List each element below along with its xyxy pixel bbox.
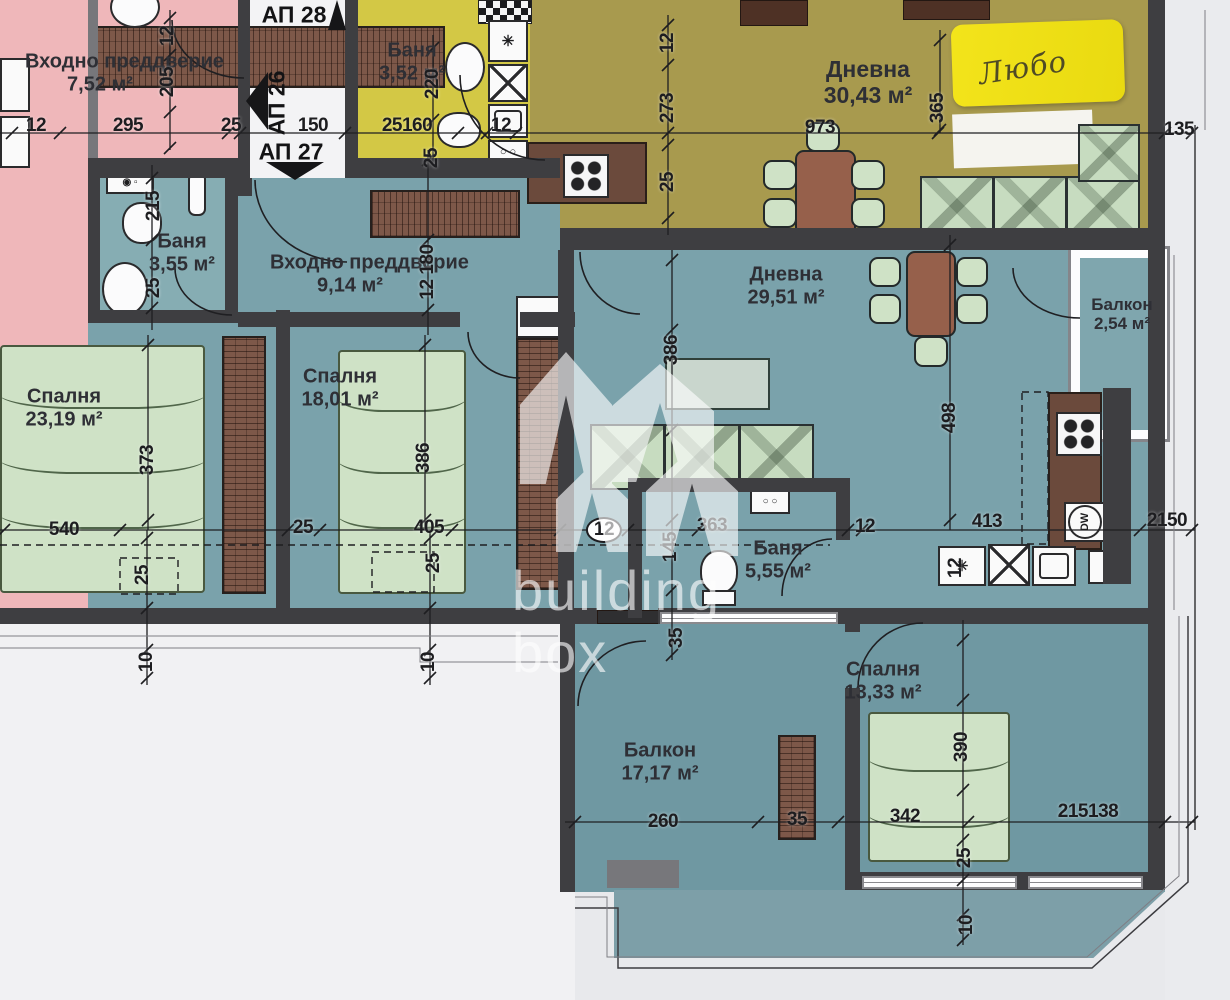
dishwasher-icon: DW [1064, 502, 1106, 542]
window [862, 876, 1017, 889]
dimension-label: 342 [890, 806, 920, 828]
dimension-label: 12 [26, 115, 46, 137]
wall [345, 158, 560, 178]
wall [88, 310, 238, 323]
dimension-label: 2150 [1147, 510, 1187, 532]
bed-bedroom-1333 [868, 712, 1010, 862]
console-table [665, 358, 770, 410]
dimension-label: 373 [137, 445, 159, 475]
paper-right [1165, 0, 1230, 1000]
dimension-label: 413 [972, 511, 1002, 533]
dimension-label: 35 [787, 809, 807, 831]
dimension-label: 10 [136, 652, 158, 672]
dimension-label: 12 180 [417, 244, 439, 299]
dimension-label: 295 [113, 115, 143, 137]
wardrobe-bedroom-1801 [516, 338, 560, 590]
room-label-bedroom-1333: Спалня13,33 м² [813, 658, 953, 703]
chair [763, 160, 797, 190]
dimension-label: 973 [805, 117, 835, 139]
wall [0, 608, 575, 624]
dimension-label: 135 [1164, 119, 1194, 141]
chair [763, 198, 797, 228]
dimension-label: 25 [221, 115, 241, 137]
dimension-label: 386 [661, 335, 683, 365]
chair [851, 160, 885, 190]
dimension-label: 540 [49, 519, 79, 541]
dimension-label: 25 [293, 517, 313, 539]
dimension-label: 260 [648, 811, 678, 833]
dimension-label: 25 [423, 553, 445, 573]
dimension-label: 12 [855, 516, 875, 538]
paper-bottom-left [0, 624, 575, 1000]
dimension-label: 205 [157, 67, 179, 97]
dimension-label: 150 [298, 115, 328, 137]
dimension-label: 10 [418, 652, 440, 672]
wall-light [607, 860, 679, 888]
room-label-living-2951: Дневна29,51 м² [706, 263, 866, 308]
chair [956, 294, 988, 324]
wall [628, 492, 642, 618]
dimension-label: 25 [143, 278, 165, 298]
wall [345, 0, 358, 178]
window [1028, 876, 1143, 889]
room-label-bath-555: Баня5,55 м² [723, 537, 833, 582]
erased-patch-1 [952, 110, 1094, 169]
wall [858, 608, 1148, 624]
dimension-label: 25160 [382, 115, 432, 137]
wall [558, 250, 574, 616]
room-label-balcony-254: Балкон2,54 м² [1076, 295, 1168, 333]
dimension-label: 25 [954, 848, 976, 868]
toilet-icon [437, 112, 481, 148]
chair [869, 257, 901, 287]
dimension-label: 273 [657, 93, 679, 123]
dining-table-2951 [906, 251, 956, 337]
sticky-note-text: Любо [976, 44, 1069, 91]
sticky-note: Любо [951, 19, 1126, 107]
balcony-slab [614, 890, 1165, 958]
sink-cross-icon [488, 64, 528, 102]
wall [845, 688, 860, 876]
wall [575, 608, 597, 624]
stove-icon [563, 154, 609, 198]
wall [560, 228, 1165, 250]
wall [836, 478, 850, 540]
dimension-label: 25 [657, 172, 679, 192]
dw-label: DW [1068, 505, 1102, 539]
sofa-living-3043 [920, 176, 1140, 236]
dimension-label: 25 [421, 148, 443, 168]
corridor-label: АП 26 [264, 71, 291, 136]
sink-cross-icon [988, 544, 1030, 586]
wall [1103, 388, 1131, 584]
tv-cabinet [740, 0, 808, 26]
dining-table-3043 [795, 150, 856, 236]
sofa-living-3043-corner [1078, 124, 1140, 182]
wall [1148, 0, 1165, 250]
dimension-label: 386 [413, 443, 435, 473]
wall [628, 478, 843, 492]
dimension-label: 215 [143, 191, 165, 221]
wall [238, 178, 252, 196]
chair [869, 294, 901, 324]
corridor-label: АП 28 [262, 2, 327, 29]
wall [1148, 250, 1165, 890]
dimension-label: 12 [157, 26, 179, 46]
dimension-label: 10 [956, 915, 978, 935]
dimension-label: 12 [586, 517, 622, 543]
room-label-bedroom-2319: Спалня23,19 м² [0, 385, 134, 430]
wall [845, 616, 860, 632]
dimension-label: 12 [945, 558, 967, 578]
wall [238, 312, 460, 327]
toilet-tank [702, 590, 736, 606]
dimension-label: 498 [939, 403, 961, 433]
wall [560, 616, 575, 892]
wall [276, 310, 290, 616]
dimension-label: 390 [951, 732, 973, 762]
corridor-label: АП 27 [259, 139, 324, 166]
floor-plan: ▪▪ ✳ ○ ○ DW [0, 0, 1230, 1000]
dimension-label: 12 [657, 33, 679, 53]
room-label-bath-352: Баня3,52 м² [357, 39, 467, 84]
window [660, 612, 838, 624]
wardrobe-hall-914 [370, 190, 520, 238]
dimension-label: 35 [666, 628, 688, 648]
dimension-label: 365 [927, 93, 949, 123]
dimension-label: 215138 [1058, 801, 1118, 823]
room-label-entry-752: Входно преддверие7,52 м² [25, 50, 175, 95]
room-label-bedroom-1801: Спалня18,01 м² [270, 365, 410, 410]
asterisk-icon: ✳ [502, 32, 515, 50]
room-label-bath-355: Баня3,55 м² [122, 230, 242, 275]
tv-cabinet [903, 0, 990, 20]
chair [914, 336, 948, 367]
stove-icon [1056, 412, 1102, 456]
wall [88, 165, 100, 322]
dimension-label: 220 [422, 69, 444, 99]
shower-icon [188, 172, 206, 216]
dimension-label: 405 [414, 517, 444, 539]
dimension-label: 363 [697, 515, 727, 537]
freezer-icon: ✳ [488, 20, 528, 62]
wardrobe-bedroom-2319 [222, 336, 266, 594]
dimension-label: 145 [660, 532, 682, 562]
sink-basin [1032, 546, 1076, 586]
bed-bedroom-2319 [0, 345, 205, 593]
room-label-entry-914: Входно преддверие9,14 м² [270, 251, 430, 296]
room-label-balcony-1717: Балкон17,17 м² [585, 739, 735, 784]
dimension-label: 12 [491, 115, 511, 137]
dimension-label: 25 [132, 565, 154, 585]
chair [956, 257, 988, 287]
chair [851, 198, 885, 228]
